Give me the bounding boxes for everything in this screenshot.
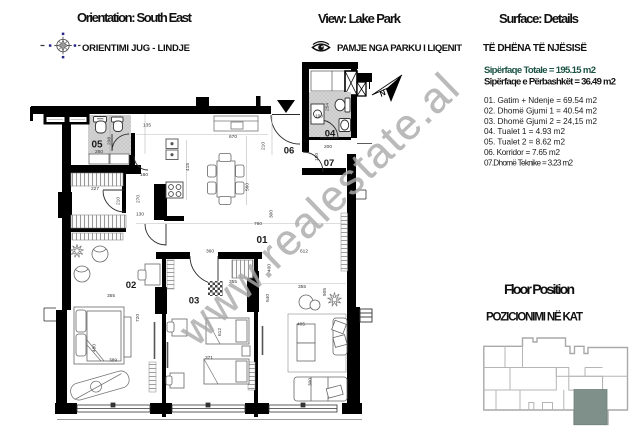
svg-text:Sipërfaqe Totale = 195.15 m2: Sipërfaqe Totale = 195.15 m2: [484, 65, 596, 76]
svg-text:560: 560: [245, 183, 251, 191]
svg-text:03. Dhomë Gjumi 2 = 24,15 m2: 03. Dhomë Gjumi 2 = 24,15 m2: [484, 117, 597, 126]
svg-text:POZICIONIMI NË KAT: POZICIONIMI NË KAT: [486, 311, 583, 324]
svg-text:389: 389: [109, 358, 117, 364]
svg-text:02: 02: [126, 280, 137, 291]
svg-text:Surface: Details: Surface: Details: [499, 11, 579, 26]
svg-text:135: 135: [143, 123, 151, 129]
svg-text:06. Korridor = 7.65 m2: 06. Korridor = 7.65 m2: [484, 148, 560, 157]
svg-text:01. Gatim + Ndenje = 69.54 m2: 01. Gatim + Ndenje = 69.54 m2: [484, 96, 597, 105]
svg-text:355: 355: [298, 284, 306, 290]
svg-text:07.Dhomë Teknike = 3.23 m2: 07.Dhomë Teknike = 3.23 m2: [484, 158, 573, 167]
svg-text:ORIENTIMI JUG - LINDJE: ORIENTIMI JUG - LINDJE: [82, 43, 190, 54]
svg-text:300: 300: [308, 378, 314, 386]
svg-text:720: 720: [135, 314, 141, 322]
svg-text:160: 160: [140, 172, 148, 178]
svg-text:View: Lake Park: View: Lake Park: [318, 11, 402, 26]
svg-text:05. Tualet 2 = 8.62 m2: 05. Tualet 2 = 8.62 m2: [484, 138, 565, 147]
svg-text:200: 200: [324, 144, 332, 150]
svg-text:04: 04: [325, 129, 336, 140]
svg-text:670: 670: [229, 134, 237, 140]
svg-text:254: 254: [325, 103, 331, 111]
svg-text:905: 905: [322, 288, 328, 296]
svg-text:415: 415: [185, 163, 191, 171]
svg-text:Orientation: South East: Orientation: South East: [77, 10, 193, 25]
svg-text:02. Dhomë Gjumi 1 = 40.54 m2: 02. Dhomë Gjumi 1 = 40.54 m2: [484, 106, 597, 115]
svg-text:227: 227: [91, 186, 99, 192]
svg-text:Floor Position: Floor Position: [504, 281, 575, 297]
svg-text:270: 270: [136, 195, 142, 203]
svg-text:355: 355: [107, 293, 115, 299]
svg-text:130: 130: [136, 212, 144, 218]
svg-text:06: 06: [284, 146, 295, 157]
svg-text:04. Tualet 1 = 4.93 m2: 04. Tualet 1 = 4.93 m2: [484, 127, 565, 136]
svg-text:150: 150: [314, 153, 320, 161]
svg-text:210: 210: [261, 142, 267, 150]
svg-text:480: 480: [92, 344, 98, 352]
svg-text:300: 300: [269, 210, 275, 218]
svg-text:TË DHËNA TË NJËSISË: TË DHËNA TË NJËSISË: [483, 41, 587, 54]
svg-text:05: 05: [91, 140, 103, 151]
svg-text:190: 190: [315, 114, 323, 120]
svg-text:540: 540: [265, 294, 271, 302]
svg-text:208: 208: [107, 137, 113, 145]
svg-text:210: 210: [116, 197, 122, 205]
svg-text:371: 371: [205, 355, 213, 361]
svg-text:Sipërfaqe e Përbashkët = 36.49: Sipërfaqe e Përbashkët = 36.49 m2: [484, 77, 616, 88]
svg-text:405: 405: [297, 322, 305, 328]
svg-text:PAMJE NGA PARKU I LIQENIT: PAMJE NGA PARKU I LIQENIT: [337, 43, 462, 54]
svg-text:360: 360: [206, 249, 214, 255]
svg-text:760: 760: [254, 221, 262, 227]
